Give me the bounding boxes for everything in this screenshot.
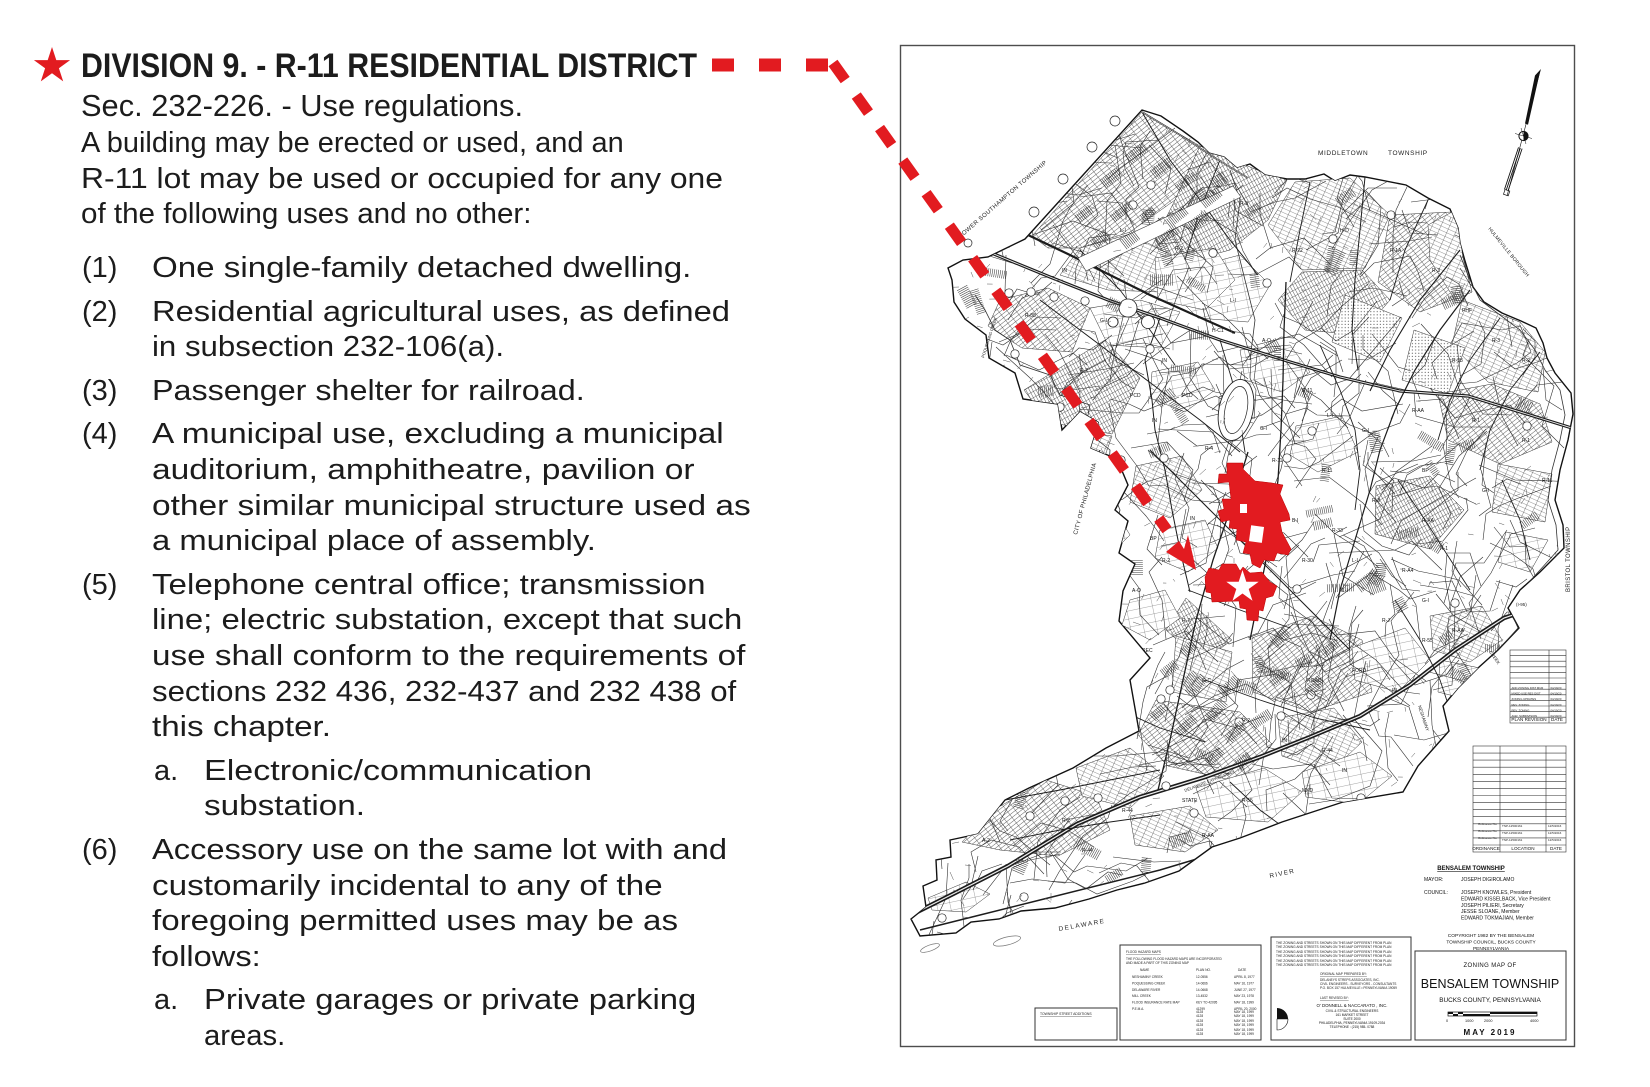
- svg-text:THE ZONING AND STREETS SHOWN O: THE ZONING AND STREETS SHOWN ON THIS MAP…: [1276, 954, 1392, 958]
- svg-text:TOWNSHIP: TOWNSHIP: [1388, 150, 1428, 157]
- svg-text:PCD: PCD: [1130, 393, 1141, 399]
- svg-text:TNP-12500161: TNP-12500161: [1502, 831, 1523, 835]
- svg-text:O’ DONNELL & NACCARATO , INC.: O’ DONNELL & NACCARATO , INC.: [1317, 1003, 1388, 1008]
- svg-text:REV. ZONING: REV. ZONING: [1512, 703, 1530, 707]
- svg-text:4000: 4000: [1530, 1019, 1538, 1023]
- svg-text:BP: BP: [1150, 536, 1157, 542]
- svg-text:B-I: B-I: [1292, 518, 1298, 524]
- svg-text:R-AA: R-AA: [1412, 408, 1425, 414]
- svg-text:G-C: G-C: [1202, 678, 1212, 684]
- svg-text:ZONING MAP OF: ZONING MAP OF: [1463, 963, 1516, 969]
- svg-text:MAY 2019: MAY 2019: [1464, 1028, 1517, 1037]
- svg-text:R-1: R-1: [1472, 418, 1480, 424]
- svg-text:H-D: H-D: [1340, 228, 1349, 234]
- svg-text:2000: 2000: [1484, 1019, 1492, 1023]
- svg-text:R-3: R-3: [1492, 338, 1500, 344]
- svg-text:A-O: A-O: [1132, 588, 1141, 594]
- svg-text:R-2: R-2: [1162, 558, 1170, 564]
- svg-text:JOSEPH PILIERI, Secretary: JOSEPH PILIERI, Secretary: [1461, 903, 1524, 909]
- svg-text:R-2: R-2: [1080, 368, 1088, 374]
- svg-text:R-22: R-22: [1292, 248, 1303, 254]
- svg-text:DATE: DATE: [1550, 846, 1562, 851]
- svg-text:EDWARD KISSELBACK, Vice Presid: EDWARD KISSELBACK, Vice President: [1461, 896, 1551, 902]
- svg-text:BRISTOL TOWNSHIP: BRISTOL TOWNSHIP: [1566, 526, 1572, 592]
- svg-text:(I-95): (I-95): [1516, 602, 1527, 607]
- svg-text:L-I: L-I: [1352, 558, 1358, 564]
- svg-text:L-I: L-I: [1230, 298, 1236, 304]
- svg-text:ORIGINAL MAP PREPARED BY:: ORIGINAL MAP PREPARED BY:: [1320, 972, 1367, 976]
- svg-text:4128: 4128: [1196, 1032, 1203, 1036]
- svg-text:PHF: PHF: [1462, 308, 1472, 314]
- svg-text:Ordinance No.: Ordinance No.: [1478, 822, 1498, 826]
- svg-text:TNP-12500161: TNP-12500161: [1502, 824, 1523, 828]
- svg-text:IN: IN: [1282, 738, 1287, 744]
- svg-text:12/5/2016: 12/5/2016: [1548, 838, 1562, 842]
- svg-text:MIXED USE RES DIST: MIXED USE RES DIST: [1512, 692, 1541, 696]
- svg-text:JOSEPH KNOWLES, President: JOSEPH KNOWLES, President: [1461, 890, 1532, 896]
- svg-text:R-3: R-3: [1372, 498, 1380, 504]
- svg-text:THE ZONING AND STREETS SHOWN O: THE ZONING AND STREETS SHOWN ON THIS MAP…: [1276, 963, 1392, 967]
- svg-text:04/19/20: 04/19/20: [1551, 697, 1562, 701]
- svg-text:BENSALEM TOWNSHIP: BENSALEM TOWNSHIP: [1421, 977, 1559, 991]
- svg-text:APRIL 8, 1977: APRIL 8, 1977: [1234, 975, 1255, 979]
- svg-text:FLOOD HAZARD MAPS: FLOOD HAZARD MAPS: [1126, 950, 1161, 954]
- svg-text:L-I: L-I: [1327, 413, 1333, 419]
- svg-text:R-30: R-30: [1302, 558, 1313, 564]
- svg-text:R-A4: R-A4: [1402, 568, 1414, 574]
- svg-text:R-3: R-3: [1240, 201, 1248, 207]
- svg-text:0: 0: [1446, 1019, 1448, 1023]
- svg-text:NAME: NAME: [1140, 968, 1149, 972]
- svg-text:R-55: R-55: [1242, 798, 1253, 804]
- svg-text:FORD: FORD: [1352, 668, 1367, 674]
- svg-text:R-88: R-88: [1025, 313, 1036, 319]
- svg-text:BUCKS COUNTY, PENNSYLVANIA: BUCKS COUNTY, PENNSYLVANIA: [1439, 997, 1541, 1004]
- svg-text:MAY 18, 1999: MAY 18, 1999: [1234, 1023, 1254, 1027]
- svg-text:13-4532: 13-4532: [1196, 994, 1208, 998]
- svg-text:G-I: G-I: [1260, 426, 1267, 432]
- svg-text:R-11: R-11: [1542, 478, 1553, 484]
- svg-text:04/19/20: 04/19/20: [1551, 686, 1562, 690]
- svg-text:R-2: R-2: [1062, 818, 1070, 824]
- svg-text:IN: IN: [1342, 768, 1347, 774]
- svg-text:DATE: DATE: [1551, 717, 1563, 722]
- svg-text:R-7: R-7: [1182, 618, 1190, 624]
- svg-text:DATE: DATE: [1238, 968, 1246, 972]
- svg-text:BENSALEM TOWNSHIP: BENSALEM TOWNSHIP: [1437, 866, 1505, 872]
- svg-text:R-1: R-1: [1440, 546, 1448, 552]
- svg-text:MAY 18, 1999: MAY 18, 1999: [1234, 1001, 1254, 1005]
- svg-text:IN: IN: [1392, 688, 1397, 694]
- svg-text:G-I: G-I: [1482, 488, 1489, 494]
- svg-text:IN: IN: [1162, 358, 1167, 364]
- svg-text:TNP-12500161: TNP-12500161: [1502, 838, 1523, 842]
- svg-text:THE ZONING AND STREETS SHOWN O: THE ZONING AND STREETS SHOWN ON THIS MAP…: [1276, 945, 1392, 949]
- svg-text:JESSE SLOANE, Member: JESSE SLOANE, Member: [1461, 909, 1520, 915]
- svg-text:MAY 18, 1999: MAY 18, 1999: [1234, 1014, 1254, 1018]
- svg-text:MAY 16, 1977: MAY 16, 1977: [1234, 981, 1254, 985]
- svg-text:1000: 1000: [1465, 1019, 1473, 1023]
- svg-text:TELEPHONE : (215) 985- 0788: TELEPHONE : (215) 985- 0788: [1330, 1025, 1375, 1029]
- svg-text:PLAN NO.: PLAN NO.: [1196, 968, 1211, 972]
- svg-text:R-4: R-4: [1205, 446, 1213, 452]
- svg-text:IN: IN: [1190, 516, 1195, 522]
- svg-text:R-44: R-44: [1322, 748, 1333, 754]
- svg-text:DELAWARE RIVER: DELAWARE RIVER: [1132, 988, 1161, 992]
- svg-text:FLOOD INSURANCE RATE MAP: FLOOD INSURANCE RATE MAP: [1132, 1001, 1180, 1005]
- svg-text:JOSEPH DIGIROLAMO: JOSEPH DIGIROLAMO: [1461, 877, 1514, 883]
- svg-text:NESHAMINY CREEK: NESHAMINY CREEK: [1132, 975, 1164, 979]
- svg-text:MAY 18, 1999: MAY 18, 1999: [1234, 1032, 1254, 1036]
- svg-text:04/19/20: 04/19/20: [1551, 692, 1562, 696]
- svg-text:COPYRIGHT 1982 BY THE: COPYRIGHT 1982 BY THE BENSALEM: [1448, 933, 1534, 939]
- svg-text:AND MADE A PART OF THIS ZONING: AND MADE A PART OF THIS ZONING MAP: [1126, 961, 1189, 965]
- svg-text:COUNCIL:: COUNCIL:: [1424, 890, 1448, 896]
- svg-text:MXD: MXD: [1302, 788, 1314, 794]
- svg-text:R-2: R-2: [1522, 358, 1530, 364]
- svg-text:R-33: R-33: [1452, 358, 1463, 364]
- svg-text:R-AA: R-AA: [1202, 833, 1215, 839]
- svg-text:MAY 23, 1978: MAY 23, 1978: [1234, 994, 1254, 998]
- svg-text:G-I: G-I: [1422, 598, 1429, 604]
- svg-text:P.O. BOX 157 HULMEVILLE • PE: P.O. BOX 157 HULMEVILLE • PENNSYLVANIA 1…: [1320, 986, 1397, 990]
- svg-text:Ordinance No.: Ordinance No.: [1478, 836, 1498, 840]
- svg-text:14-0666: 14-0666: [1196, 981, 1208, 985]
- svg-text:R-55: R-55: [1422, 638, 1433, 644]
- svg-text:R-AA: R-AA: [1422, 518, 1435, 524]
- svg-text:R-1A: R-1A: [1390, 248, 1402, 254]
- svg-text:R-2: R-2: [1175, 246, 1183, 252]
- svg-text:MAYOR:: MAYOR:: [1424, 877, 1443, 883]
- svg-text:ORDINANCE: ORDINANCE: [1472, 846, 1500, 851]
- svg-text:EDWARD TOKMAJIAN, Member: EDWARD TOKMAJIAN, Member: [1461, 916, 1534, 922]
- svg-text:TOWNSHIP COUNCIL, BUCKS: TOWNSHIP COUNCIL, BUCKS COUNTY: [1446, 940, 1536, 946]
- svg-text:L-I: L-I: [1120, 228, 1126, 234]
- svg-text:R-AA: R-AA: [1452, 628, 1465, 634]
- svg-text:LOCATION: LOCATION: [1511, 846, 1534, 851]
- svg-text:L-I: L-I: [1342, 588, 1348, 594]
- svg-text:IN: IN: [1062, 268, 1067, 274]
- svg-text:ADD ZONING DIST MUR: ADD ZONING DIST MUR: [1512, 686, 1544, 690]
- svg-text:KEY TO 42095: KEY TO 42095: [1196, 1001, 1217, 1005]
- svg-text:A-2: A-2: [982, 838, 990, 844]
- svg-text:12/5/2016: 12/5/2016: [1548, 824, 1562, 828]
- svg-text:REV. ZONING: REV. ZONING: [1512, 708, 1530, 712]
- svg-text:MIDDLETOWN: MIDDLETOWN: [1318, 150, 1368, 157]
- svg-text:POQUESSING CREEK: POQUESSING CREEK: [1132, 981, 1166, 985]
- svg-text:IN: IN: [1152, 418, 1157, 424]
- svg-text:BP: BP: [1422, 468, 1429, 474]
- svg-text:04/19/20: 04/19/20: [1551, 703, 1562, 707]
- svg-text:R-33: R-33: [1332, 528, 1343, 534]
- svg-text:JUNE 27, 1977: JUNE 27, 1977: [1234, 988, 1256, 992]
- svg-text:14-0668: 14-0668: [1196, 988, 1208, 992]
- svg-text:MILL CREEK: MILL CREEK: [1132, 994, 1152, 998]
- svg-text:R-3: R-3: [1432, 268, 1440, 274]
- svg-text:R-1: R-1: [1522, 438, 1530, 444]
- svg-text:04/19/20: 04/19/20: [1551, 708, 1562, 712]
- svg-text:4128: 4128: [1196, 1014, 1203, 1018]
- svg-text:TOWNSHIP STREET ADDITIONS: TOWNSHIP STREET ADDITIONS: [1040, 1012, 1092, 1016]
- svg-text:PCD: PCD: [1182, 393, 1193, 399]
- svg-text:LAST REVISED BY:: LAST REVISED BY:: [1320, 996, 1349, 1000]
- svg-text:R-J: R-J: [1382, 618, 1390, 624]
- svg-text:G-I: G-I: [1100, 318, 1107, 324]
- svg-text:P.E.M.A.: P.E.M.A.: [1132, 1007, 1144, 1011]
- svg-text:12-0556: 12-0556: [1196, 975, 1208, 979]
- svg-text:PLAN REVISION: PLAN REVISION: [1511, 717, 1546, 722]
- svg-text:4128: 4128: [1196, 1023, 1203, 1027]
- svg-text:12/5/2016: 12/5/2016: [1548, 831, 1562, 835]
- svg-text:H-C1: H-C1: [1212, 328, 1224, 334]
- svg-text:Ordinance No.: Ordinance No.: [1478, 829, 1498, 833]
- svg-text:ZONING UPDATES: ZONING UPDATES: [1512, 697, 1537, 701]
- svg-text:R-11: R-11: [1272, 458, 1283, 464]
